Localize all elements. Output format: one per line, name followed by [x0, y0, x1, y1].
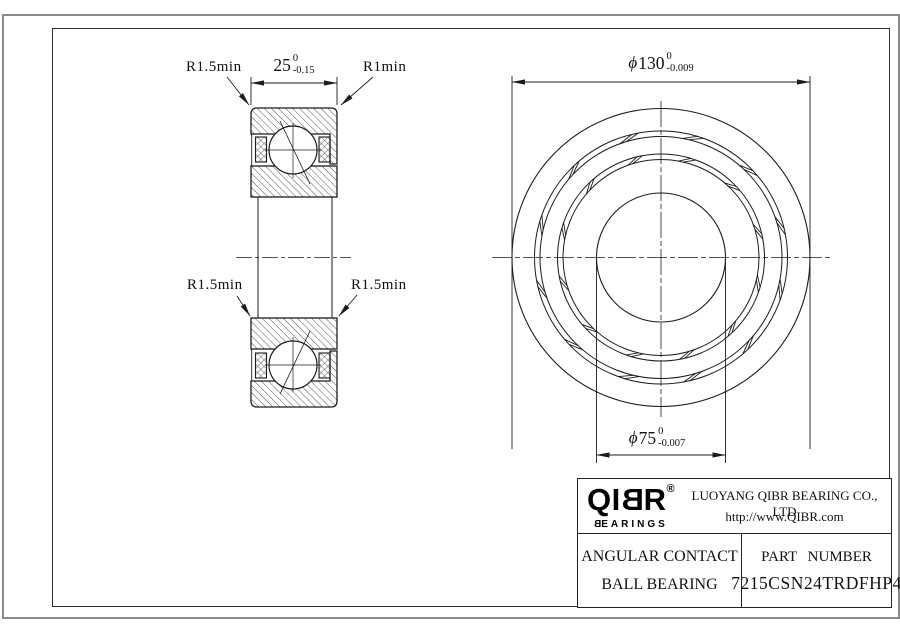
width-tolerance: 0 -0.15	[293, 53, 315, 77]
section-bottom-half	[251, 318, 337, 407]
width-dimension-text: 25 0 -0.15	[244, 53, 344, 77]
bore-dia-dimension-text: ϕ 75 0 -0.007	[597, 426, 717, 450]
qibr-logo: QIBR®	[587, 484, 675, 515]
company-website: http://www.QIBR.com	[680, 509, 889, 525]
outer-dia-dimension-text: ϕ 130 0 -0.009	[601, 51, 721, 75]
section-view	[227, 77, 373, 407]
cage-top-right	[319, 137, 330, 162]
cage-top-left	[256, 137, 267, 162]
diameter-symbol: ϕ	[628, 53, 637, 73]
registered-trademark-icon: ®	[667, 483, 675, 495]
cage-bottom-left	[256, 353, 267, 378]
part-number-value: 7215CSN24TRDFHP4	[731, 569, 900, 597]
part-number-label: PART NUMBER	[761, 545, 872, 569]
product-name-cell: ANGULAR CONTACT BALL BEARING	[578, 534, 741, 607]
product-line1: ANGULAR CONTACT	[581, 543, 738, 571]
cage-bottom-right	[319, 353, 330, 378]
engineering-drawing-sheet: R1.5min R1min R1.5min R1.5min 25 0 -0.15…	[0, 0, 900, 636]
chamfer-label-top-right: R1min	[363, 59, 406, 76]
width-nominal: 25	[273, 55, 291, 76]
qibr-logo-subtitle: BEARINGS	[591, 519, 668, 530]
part-number-cell: PART NUMBER 7215CSN24TRDFHP4	[742, 534, 891, 607]
title-block: QIBR® BEARINGS LUOYANG QIBR BEARING CO.,…	[577, 478, 892, 608]
width-dimension-lines	[251, 77, 337, 105]
chamfer-label-bottom-left: R1.5min	[187, 277, 243, 294]
diameter-symbol: ϕ	[629, 428, 638, 448]
front-view	[492, 76, 831, 463]
chamfer-label-top-left: R1.5min	[186, 59, 242, 76]
section-top-half	[251, 108, 337, 197]
product-line2: BALL BEARING	[601, 571, 717, 599]
chamfer-label-bottom-right: R1.5min	[351, 277, 407, 294]
